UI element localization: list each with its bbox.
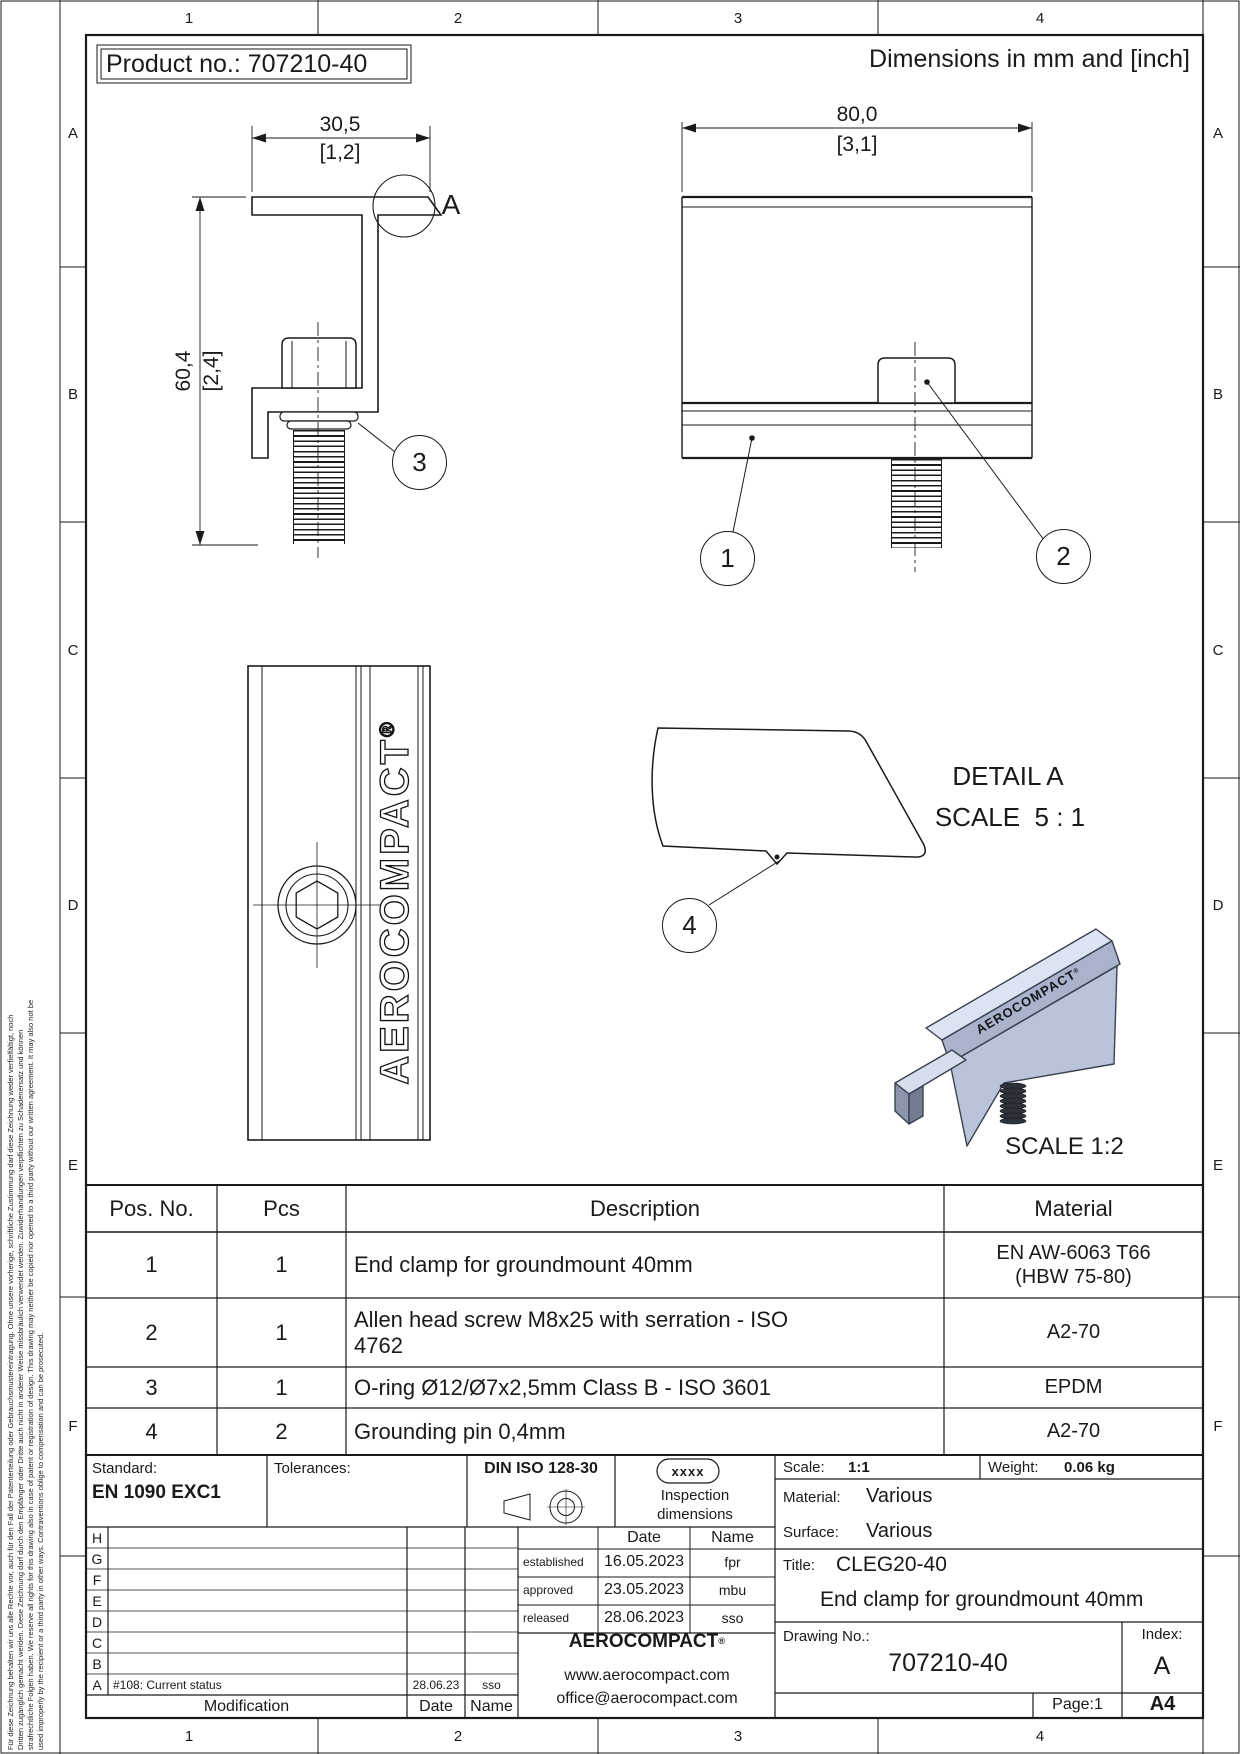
table-header-description: Description xyxy=(346,1185,944,1232)
zone-row-f-left: F xyxy=(60,1416,86,1436)
inspection-line2: dimensions xyxy=(617,1505,773,1523)
zone-col-2-bottom: 2 xyxy=(438,1726,478,1746)
zone-row-d-right: D xyxy=(1205,895,1231,915)
table-row-1-pos: 1 xyxy=(86,1232,217,1298)
zone-col-3-bottom: 3 xyxy=(718,1726,758,1746)
top-view-logo: AEROCOMPACT® xyxy=(373,719,417,1085)
zone-col-2-top: 2 xyxy=(438,8,478,28)
table-row-2-pos: 2 xyxy=(86,1298,217,1367)
index-value: A xyxy=(1126,1652,1198,1680)
side-view-thread xyxy=(293,430,345,544)
dim-width-inch-front: [3,1] xyxy=(807,134,907,156)
sheet-format: A4 xyxy=(1124,1692,1201,1716)
revision-letter-a: A xyxy=(86,1674,108,1695)
table-header-pos: Pos. No. xyxy=(86,1185,217,1232)
revision-a-date: 28.06.23 xyxy=(407,1676,465,1694)
inspection-code: xxxx xyxy=(657,1459,719,1483)
standard-value: EN 1090 EXC1 xyxy=(92,1481,262,1505)
dimensions-note: Dimensions in mm and [inch] xyxy=(830,45,1190,73)
company-website: www.aerocompact.com xyxy=(522,1666,772,1686)
approval-name-header: Name xyxy=(690,1528,775,1548)
zone-row-a-left: A xyxy=(60,123,86,143)
dim-height-inch-side: [2,4] xyxy=(200,321,224,421)
established-name: fpr xyxy=(690,1551,775,1573)
zone-col-1-bottom: 1 xyxy=(169,1726,209,1746)
revision-letter-g: G xyxy=(86,1548,108,1569)
table-header-pcs: Pcs xyxy=(217,1185,346,1232)
surface-value: Various xyxy=(866,1519,1006,1543)
released-date: 28.06.2023 xyxy=(598,1607,690,1629)
drawing-sheet: AEROCOMPACT® xyxy=(0,0,1240,1754)
table-row-2-material: A2-70 xyxy=(944,1298,1203,1367)
table-row-3-description: O-ring Ø12/Ø7x2,5mm Class B - ISO 3601 xyxy=(354,1367,934,1408)
zone-col-4-top: 4 xyxy=(1020,8,1060,28)
surface-label: Surface: xyxy=(783,1522,863,1542)
inspection-line1: Inspection xyxy=(617,1486,773,1504)
zone-row-a-right: A xyxy=(1205,123,1231,143)
revision-a-modification: #108: Current status xyxy=(113,1676,403,1694)
legal-disclaimer: Für diese Zeichnung behalten wir uns all… xyxy=(6,560,48,1750)
released-name: sso xyxy=(690,1607,775,1629)
established-label: established xyxy=(523,1552,597,1572)
table-row-4-pcs: 2 xyxy=(217,1408,346,1455)
zone-col-4-bottom: 4 xyxy=(1020,1726,1060,1746)
title-value: CLEG20-40 xyxy=(836,1553,1056,1577)
tolerances-label: Tolerances: xyxy=(274,1459,404,1477)
scale-value: 1:1 xyxy=(848,1457,908,1477)
company-name: AEROCOMPACT® xyxy=(522,1630,772,1654)
revision-letter-c: C xyxy=(86,1632,108,1653)
detail-a-geometry xyxy=(652,728,925,905)
balloon-3-oring: 3 xyxy=(392,435,447,490)
revision-letter-h: H xyxy=(86,1527,108,1548)
table-row-4-material: A2-70 xyxy=(944,1408,1203,1455)
dim-width-inch-side: [1,2] xyxy=(290,142,390,164)
din-iso-label: DIN ISO 128-30 xyxy=(473,1459,609,1479)
page-number: Page:1 xyxy=(1035,1694,1120,1716)
zone-row-c-left: C xyxy=(60,640,86,660)
approved-date: 23.05.2023 xyxy=(598,1579,690,1601)
standard-label: Standard: xyxy=(92,1459,212,1477)
approval-date-header: Date xyxy=(598,1528,690,1548)
revision-footer-name: Name xyxy=(465,1695,518,1718)
revision-a-name: sso xyxy=(465,1676,518,1694)
table-row-1-description: End clamp for groundmount 40mm xyxy=(354,1232,824,1298)
product-no-box: Product no.: 707210-40 xyxy=(106,50,402,78)
table-row-4-description: Grounding pin 0,4mm xyxy=(354,1408,934,1455)
zone-row-d-left: D xyxy=(60,895,86,915)
detail-a-title: DETAIL A xyxy=(928,761,1088,791)
established-date: 16.05.2023 xyxy=(598,1551,690,1573)
top-view-geometry: AEROCOMPACT® xyxy=(248,666,430,1140)
iso-logo-mark: ® xyxy=(1074,970,1079,973)
table-row-1-pcs: 1 xyxy=(217,1232,346,1298)
revision-footer-modification: Modification xyxy=(86,1695,407,1718)
table-row-2-pcs: 1 xyxy=(217,1298,346,1367)
detail-a-callout-label: A xyxy=(435,188,467,222)
table-header-material: Material xyxy=(944,1185,1203,1232)
dim-width-mm-front: 80,0 xyxy=(807,104,907,126)
zone-row-e-left: E xyxy=(60,1155,86,1175)
disclaimer-line-1: Für diese Zeichnung behalten wir uns all… xyxy=(6,560,16,1750)
table-row-4-pos: 4 xyxy=(86,1408,217,1455)
dim-height-mm-side: 60,4 xyxy=(172,321,196,421)
table-row-3-pos: 3 xyxy=(86,1367,217,1408)
disclaimer-line-3: strafrechtliche Folgen haben. We reserve… xyxy=(26,560,36,1750)
disclaimer-line-2: Dritten zugänglich gemacht werden. Diese… xyxy=(16,560,26,1750)
front-view-geometry xyxy=(682,122,1044,572)
title-label: Title: xyxy=(783,1556,833,1574)
weight-label: Weight: xyxy=(988,1457,1058,1477)
scale-label: Scale: xyxy=(783,1457,841,1477)
zone-col-3-top: 3 xyxy=(718,8,758,28)
zone-row-b-right: B xyxy=(1205,384,1231,404)
table-row-2-description: Allen head screw M8x25 with serration - … xyxy=(354,1298,804,1367)
detail-a-scale: SCALE 5 : 1 xyxy=(925,802,1095,832)
title-line2: End clamp for groundmount 40mm xyxy=(820,1587,1190,1613)
index-label: Index: xyxy=(1126,1625,1198,1643)
revision-footer-date: Date xyxy=(407,1695,465,1718)
drawing-no-value: 707210-40 xyxy=(783,1648,1113,1678)
disclaimer-line-4: used improperly by the recipient or a th… xyxy=(36,560,46,1750)
zone-row-b-left: B xyxy=(60,384,86,404)
released-label: released xyxy=(523,1608,597,1628)
revision-letter-e: E xyxy=(86,1590,108,1611)
zone-col-1-top: 1 xyxy=(169,8,209,28)
zone-row-f-right: F xyxy=(1205,1416,1231,1436)
iso-view-scale: SCALE 1:2 xyxy=(1002,1134,1127,1160)
company-email: office@aerocompact.com xyxy=(522,1689,772,1709)
drawing-no-label: Drawing No.: xyxy=(783,1627,913,1645)
table-row-3-pcs: 1 xyxy=(217,1367,346,1408)
approved-name: mbu xyxy=(690,1579,775,1601)
front-view-thread xyxy=(891,459,942,548)
table-row-3-material: EPDM xyxy=(944,1367,1203,1408)
revision-letter-b: B xyxy=(86,1653,108,1674)
material-value: Various xyxy=(866,1484,1006,1508)
approved-label: approved xyxy=(523,1580,597,1600)
balloon-2-screw: 2 xyxy=(1036,529,1091,584)
balloon-1-clamp: 1 xyxy=(700,531,755,586)
company-name-text: AEROCOMPACT xyxy=(569,1631,719,1653)
revision-letter-f: F xyxy=(86,1569,108,1590)
weight-value: 0.06 kg xyxy=(1064,1457,1164,1477)
material-label: Material: xyxy=(783,1487,863,1507)
balloon-4-grounding-pin: 4 xyxy=(662,898,717,953)
zone-row-c-right: C xyxy=(1205,640,1231,660)
dim-width-mm-side: 30,5 xyxy=(290,114,390,136)
table-row-1-material: EN AW-6063 T66 (HBW 75-80) xyxy=(944,1232,1203,1298)
revision-letter-d: D xyxy=(86,1611,108,1632)
zone-row-e-right: E xyxy=(1205,1155,1231,1175)
